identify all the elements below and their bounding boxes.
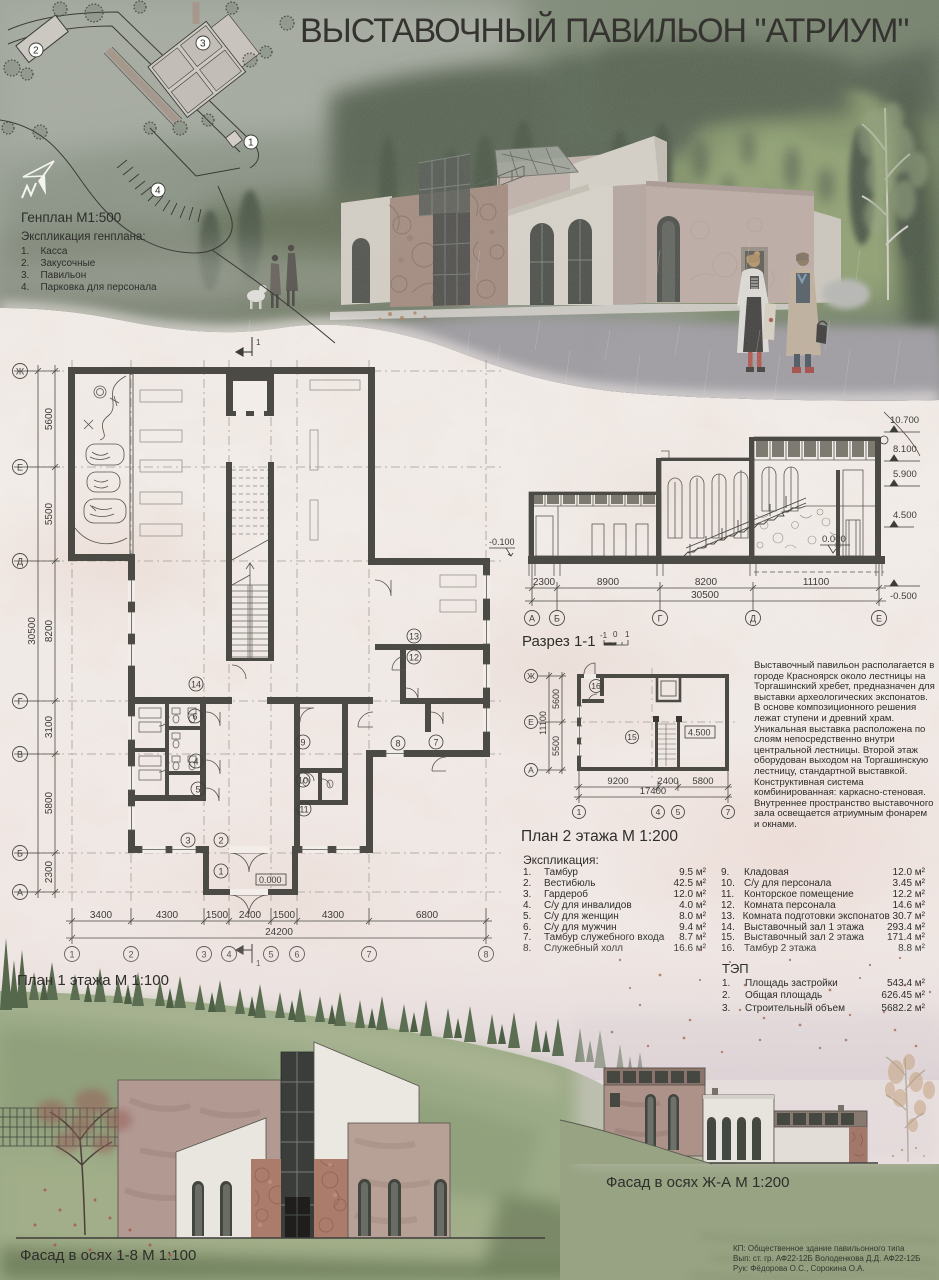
svg-text:2300: 2300 [44, 860, 55, 883]
svg-text:Б: Б [17, 849, 23, 859]
svg-text:Ж: Ж [527, 671, 535, 681]
svg-text:4: 4 [656, 807, 661, 817]
svg-text:0.000: 0.000 [259, 875, 282, 885]
svg-text:1: 1 [577, 807, 582, 817]
svg-text:7: 7 [726, 807, 731, 817]
svg-text:16: 16 [591, 681, 601, 691]
svg-text:5: 5 [676, 807, 681, 817]
svg-text:4300: 4300 [156, 910, 179, 921]
svg-text:15: 15 [627, 732, 637, 742]
svg-text:6800: 6800 [416, 910, 439, 921]
svg-text:Е: Е [528, 717, 534, 727]
svg-text:5800: 5800 [692, 776, 713, 787]
svg-text:А: А [17, 888, 23, 898]
svg-text:А: А [528, 765, 534, 775]
svg-text:5600: 5600 [551, 689, 561, 709]
svg-text:5500: 5500 [551, 736, 561, 756]
svg-text:4300: 4300 [322, 910, 345, 921]
svg-text:9200: 9200 [607, 776, 628, 787]
svg-text:1500: 1500 [273, 910, 296, 921]
svg-text:1: 1 [218, 867, 223, 877]
svg-text:3400: 3400 [90, 910, 113, 921]
svg-text:11100: 11100 [538, 711, 548, 735]
svg-text:1500: 1500 [206, 910, 229, 921]
svg-text:2400: 2400 [239, 910, 262, 921]
svg-text:17400: 17400 [640, 786, 666, 797]
svg-text:4.500: 4.500 [688, 728, 711, 738]
